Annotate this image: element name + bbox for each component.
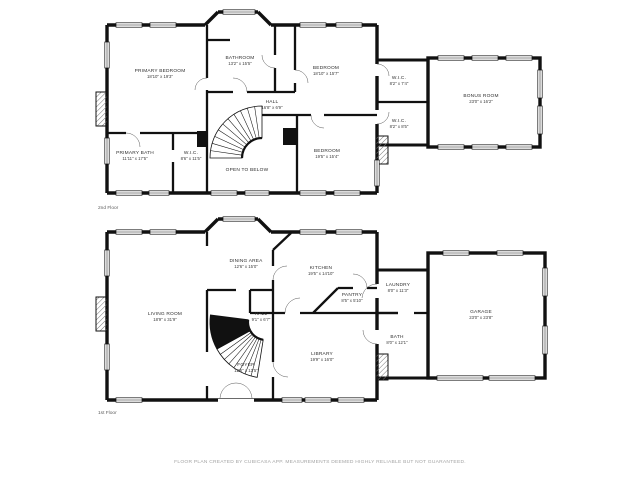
room-label: W.I.C.8'2" x 8'5" (390, 118, 409, 129)
room-label: BONUS ROOM23'0" x 16'2" (463, 93, 498, 104)
first-floor-caption: 1st Floor (98, 410, 117, 416)
room-label: PRIMARY BATH11'11" x 17'5" (116, 150, 154, 161)
room-label: BATHROOM13'2" x 15'5" (226, 55, 255, 66)
room-label: PRIMARY BEDROOM18'10" x 19'3" (135, 68, 186, 79)
room-label: PANTRY8'5" x 5'10" (341, 292, 363, 303)
chimney (96, 297, 107, 331)
room-label: DINING AREA12'6" x 15'0" (229, 258, 263, 269)
room-label: HALL16'8" x 6'9" (261, 99, 283, 110)
floorplan-page: PRIMARY BEDROOM18'10" x 19'3"BATHROOM13'… (0, 0, 640, 480)
room-label: FOYER12'6" x 12'5" (234, 362, 258, 373)
chimney (376, 354, 388, 380)
room-label: BEDROOM18'10" x 15'7" (313, 65, 340, 76)
room-label: OPEN TO BELOW (226, 167, 269, 173)
room-label: BEDROOM19'5" x 15'4" (314, 148, 340, 159)
room-label: GARAGE23'0" x 23'8" (469, 309, 493, 320)
second-floor-caption: 2nd Floor (98, 205, 119, 211)
wall-block (197, 131, 207, 147)
room-label: W.I.C.8'6" x 11'5" (181, 150, 202, 161)
room-label: LAUNDRY8'0" x 11'3" (386, 282, 411, 293)
room-label: W.I.C.8'2" x 7'4" (390, 75, 409, 86)
wall-block (283, 128, 297, 145)
room-label: LIBRARY19'9" x 16'0" (310, 351, 334, 362)
second-floor-staircase (210, 106, 262, 158)
floorplan-drawing: PRIMARY BEDROOM18'10" x 19'3"BATHROOM13'… (0, 0, 640, 480)
footer-disclaimer: FLOOR PLAN CREATED BY CUBICASA APP. MEAS… (174, 459, 466, 465)
first-floor-labels: DINING AREA12'6" x 15'0"KITCHEN19'5" x 1… (148, 258, 493, 373)
front-door (218, 383, 254, 398)
room-label: BATH8'0" x 12'1" (386, 334, 408, 345)
room-label: KITCHEN19'5" x 14'10" (308, 265, 334, 276)
room-label: LIVING ROOM18'9" x 31'9" (148, 311, 182, 322)
chimney (96, 92, 107, 126)
